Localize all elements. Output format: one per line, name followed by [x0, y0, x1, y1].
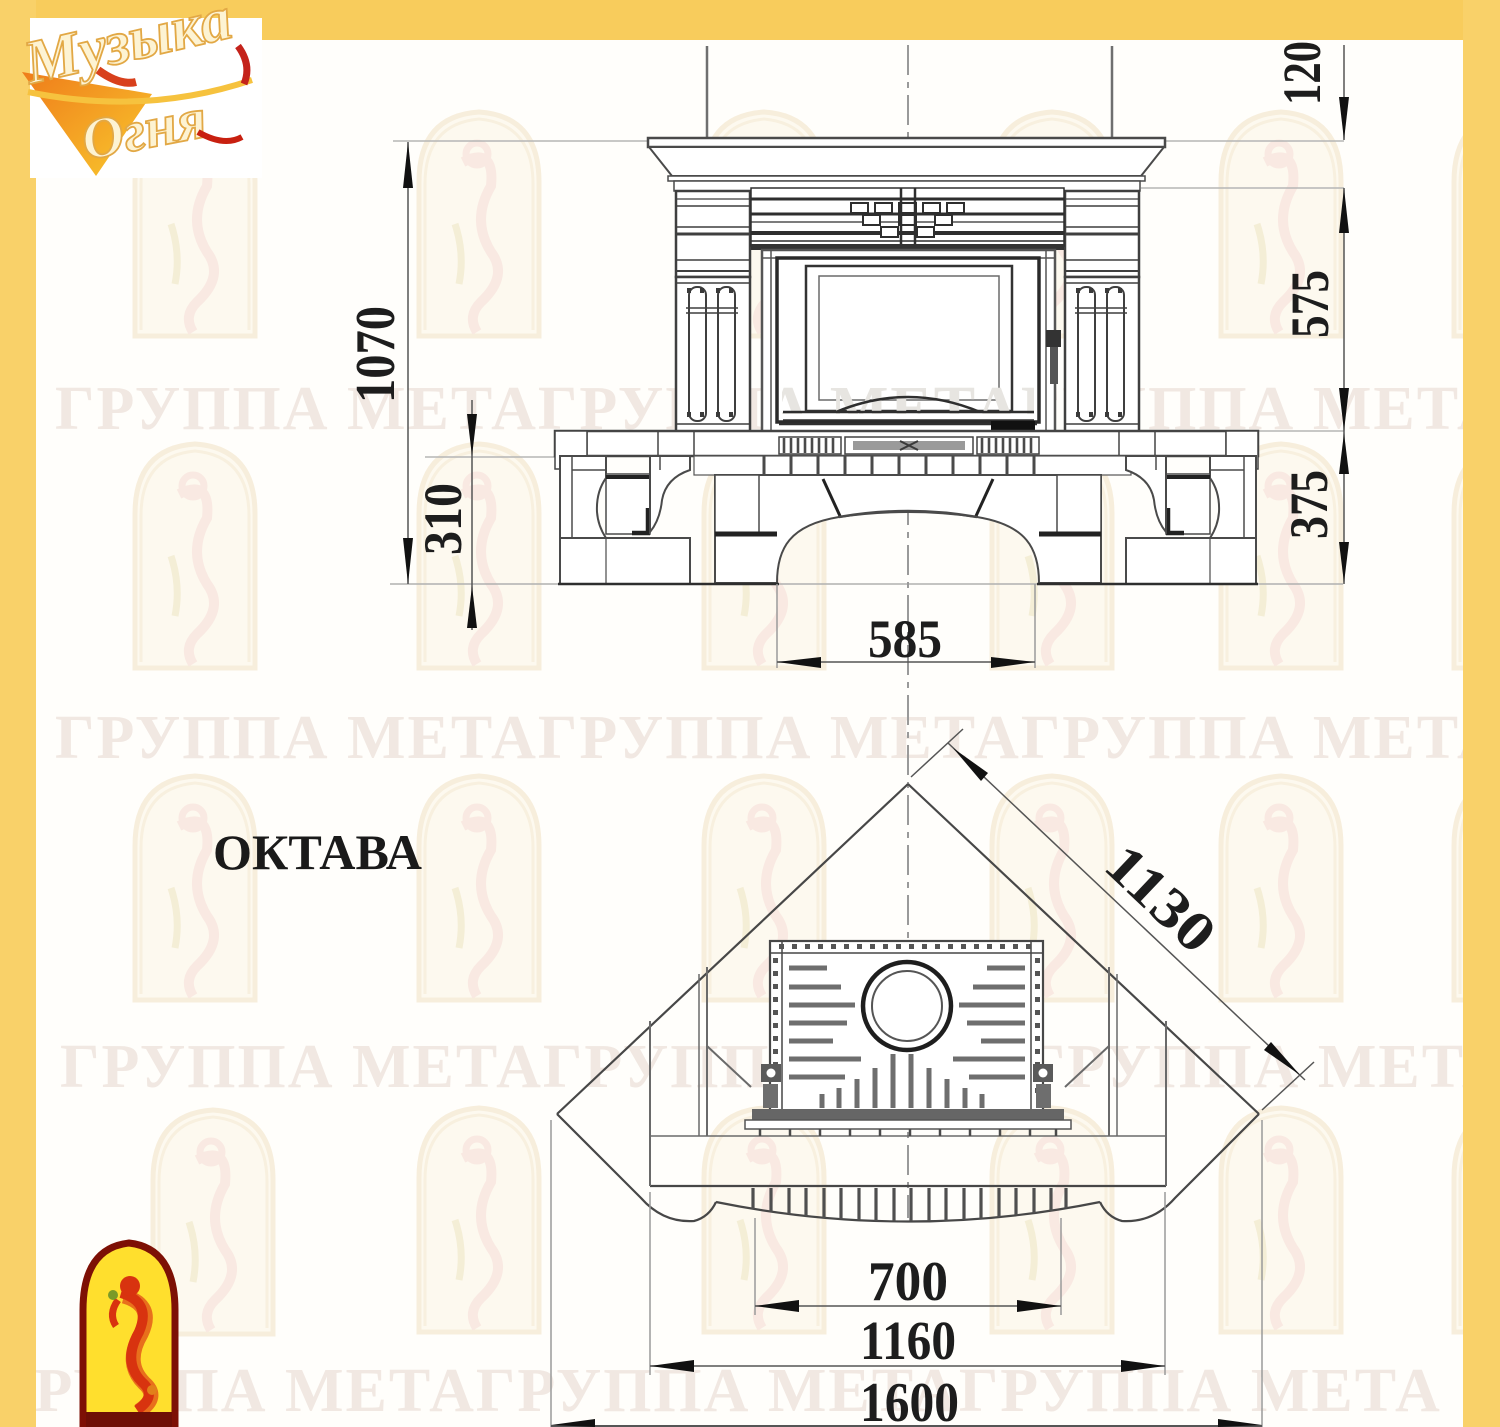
svg-text:585: 585	[868, 609, 942, 669]
svg-text:ГРУППА МЕТАГРУППА МЕТАГРУППА М: ГРУППА МЕТАГРУППА МЕТАГРУППА МЕТА	[0, 1357, 1442, 1425]
svg-text:310: 310	[413, 483, 473, 555]
svg-text:120: 120	[1272, 41, 1332, 105]
svg-text:1600: 1600	[860, 1372, 959, 1427]
svg-text:ГРУППА МЕТАГРУППА МЕТАГРУППА М: ГРУППА МЕТАГРУППА МЕТАГРУППА МЕТА	[55, 704, 1500, 772]
svg-text:575: 575	[1280, 270, 1340, 338]
svg-text:700: 700	[868, 1251, 948, 1313]
svg-text:1160: 1160	[860, 1310, 956, 1371]
svg-text:ОКТАВА: ОКТАВА	[213, 824, 422, 880]
svg-text:1070: 1070	[345, 306, 407, 403]
svg-text:375: 375	[1279, 470, 1339, 539]
